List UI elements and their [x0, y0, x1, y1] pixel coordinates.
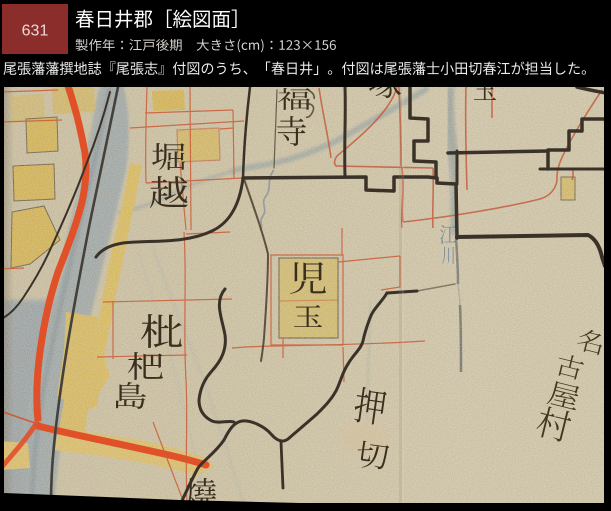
svg-text:631: 631 — [22, 23, 49, 40]
